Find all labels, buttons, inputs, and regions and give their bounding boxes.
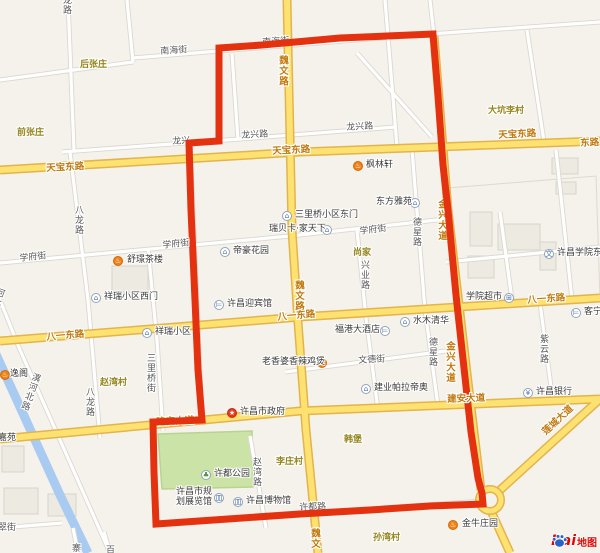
residence-icon[interactable]: ⌂ (282, 211, 292, 221)
road-label-bayi-donglu-3: 八一东路 (527, 293, 566, 306)
poi-jianye-paladiao[interactable]: 建业帕拉帝奥 (374, 383, 428, 393)
restaurant-icon[interactable]: ♨ (448, 520, 458, 530)
road-label-longxinglu-2: 龙兴路 (346, 122, 374, 133)
restaurant-icon[interactable]: ♨ (0, 370, 10, 380)
road-label-donglu-frag: 东路 (580, 138, 600, 149)
area-label-houzhangzhuang: 后张庄 (80, 60, 107, 70)
poi-dongfang-yayuan[interactable]: 东方雅苑 (376, 197, 412, 207)
government-icon[interactable]: ★ (227, 408, 237, 418)
poi-laoxiangpo-jibao[interactable]: 老香婆香辣鸡煲 (262, 357, 325, 367)
road-label-xuefujie-1: 学府街 (19, 251, 47, 264)
school-icon[interactable]: 文 (544, 249, 554, 259)
poi-fenglinxuan[interactable]: 枫林轩 (366, 160, 393, 170)
poi-qingyige[interactable]: 逸阁 (10, 369, 28, 379)
road-label-dexinglu-1: 德星路 (411, 217, 420, 247)
road-label-weiwen-frag: 魏文 (310, 528, 319, 549)
road-label-hebeilu-frag: 河北路 (0, 286, 4, 317)
residence-icon[interactable]: ⌂ (220, 247, 230, 257)
road-label-xuefujie-2: 学府街 (162, 238, 190, 251)
poi-dihao-huayuan[interactable]: 帝豪花园 (233, 246, 269, 256)
poi-ruibeika-jiatianxia[interactable]: 瑞贝卡·家天下 (269, 224, 326, 234)
museum-icon[interactable]: 皿 (214, 493, 224, 503)
road-label-dexinglu-2: 德星路 (427, 337, 436, 367)
poi-sanliqiao-xiaoqu-dongmen[interactable]: 三里桥小区东门 (295, 210, 358, 220)
poi-xudu-gongyuan[interactable]: 许都公园 (214, 469, 250, 479)
road-label-balonglu-2: 八龙路 (84, 387, 93, 417)
road-label-cuijie-frag: 翠街 (0, 523, 16, 533)
poi-fugang-dajiudian[interactable]: 福港大酒店 (335, 325, 380, 335)
area-label-lizhuangcun: 李庄村 (276, 457, 303, 467)
residence-icon[interactable]: ⌂ (361, 384, 371, 394)
road-label-xuefujie-3: 学府街 (359, 224, 387, 237)
poi-xiangrui-xiaoqu[interactable]: 祥瑞小区 (155, 327, 191, 337)
road-label-bayi-donglu-2: 八一东路 (277, 310, 316, 323)
hotel-icon[interactable]: ⊨ (380, 326, 390, 336)
road-label-wendejie: 文德街 (358, 355, 386, 366)
area-label-dakenglicun: 大坑李村 (488, 106, 524, 116)
road-label-jianan-dadao-1: 建安大道 (447, 394, 485, 405)
road-label-tianbao-donglu-2: 天宝东路 (272, 145, 310, 157)
road-label-balonglu-1: 八龙路 (73, 205, 82, 235)
baidu-maps-logo: Bai 地图 (551, 533, 597, 549)
area-label-zhaowancun: 赵湾村 (100, 378, 127, 388)
road-label-tianbao-donglu-3: 天宝东路 (498, 129, 536, 141)
bank-icon[interactable]: ¥ (523, 388, 533, 398)
poi-xuchang-yinhang[interactable]: 许昌银行 (536, 387, 572, 397)
road-label-bai-frag: 百 (104, 545, 113, 553)
residence-icon[interactable]: ⌂ (400, 317, 410, 327)
baidu-paw-icon (551, 533, 568, 548)
road-label-xingyelu: 兴业路 (359, 260, 368, 290)
road-label-nanhaijie-1: 南海街 (160, 45, 188, 57)
hotel-icon[interactable]: ⊨ (571, 308, 581, 318)
road-label-weiwenlu-1: 魏文路 (278, 55, 287, 87)
museum-icon[interactable]: 皿 (233, 497, 243, 507)
area-label-shangjia: 尚家 (353, 248, 371, 258)
map-labels: 南海街龙兴路龙兴路学府街学府街学府街八龙路八龙路三里桥街德星路德星路兴业路紫云路… (0, 0, 600, 553)
poi-kening[interactable]: 客宁 (584, 307, 600, 317)
road-label-longlu-frag: 龙路 (61, 0, 70, 15)
poi-xueyuan-chaoshi[interactable]: 学院超市 (466, 292, 502, 302)
poi-shujing-chalou[interactable]: 舒璟茶楼 (127, 255, 163, 265)
hotel-icon[interactable]: ⊨ (214, 300, 224, 310)
poi-jiayuan[interactable]: 嘉苑 (0, 433, 16, 443)
restaurant-icon[interactable]: ♨ (353, 161, 363, 171)
road-label-bayi-donglu-1: 八一东路 (46, 330, 85, 343)
area-label-qianzhangzhuang: 前张庄 (17, 128, 44, 138)
shop-icon[interactable]: ⊞ (504, 293, 514, 303)
poi-xiangrui-xiaoqu-ximen[interactable]: 祥瑞小区西门 (104, 292, 158, 302)
restaurant-icon[interactable]: ♨ (113, 256, 123, 266)
residence-icon[interactable]: ⌂ (91, 293, 101, 303)
poi-xuchang-shizhengfu[interactable]: 许昌市政府 (240, 407, 285, 417)
residence-icon[interactable]: ⌂ (142, 328, 152, 338)
road-label-liancheng-dadao: 莲城大道 (541, 404, 576, 437)
area-label-sunwancun: 孙湾村 (373, 533, 400, 543)
logo-text-ditu: 地图 (577, 534, 597, 549)
map-canvas[interactable]: 南海街龙兴许都路建安大道金兴大道金兴大道 南海街龙兴路龙兴路学府街学府街学府街八… (0, 0, 600, 553)
poi-shuimu-qinghua[interactable]: 水木清华 (413, 316, 449, 326)
road-label-tianbao-donglu-1: 天宝东路 (46, 162, 84, 174)
poi-jinniu-zhuangyuan[interactable]: 金牛庄园 (462, 519, 498, 529)
area-label-hanbao: 韩堡 (344, 435, 362, 445)
road-label-ziyunlu: 紫云路 (538, 334, 547, 364)
road-label-zhaowanlu: 赵湾路 (251, 457, 260, 487)
road-label-longxinglu-1: 龙兴路 (241, 130, 269, 141)
poi-xuchang-xueyuan-dong[interactable]: 许昌学院东校区 (557, 248, 600, 258)
poi-xuchang-bowuguan[interactable]: 许昌博物馆 (246, 496, 291, 506)
park-icon[interactable]: ♣ (201, 470, 211, 480)
road-label-weiwenlu-2: 魏文路 (294, 280, 303, 312)
poi-xuchang-yingbinguan[interactable]: 许昌迎宾馆 (227, 299, 272, 309)
poi-guihua-zhanlanguan[interactable]: 许昌市规划展览馆 (176, 487, 212, 507)
road-label-zhai-frag: 寨 (70, 543, 79, 553)
road-label-sanliqiaojie: 三里桥街 (145, 353, 154, 393)
